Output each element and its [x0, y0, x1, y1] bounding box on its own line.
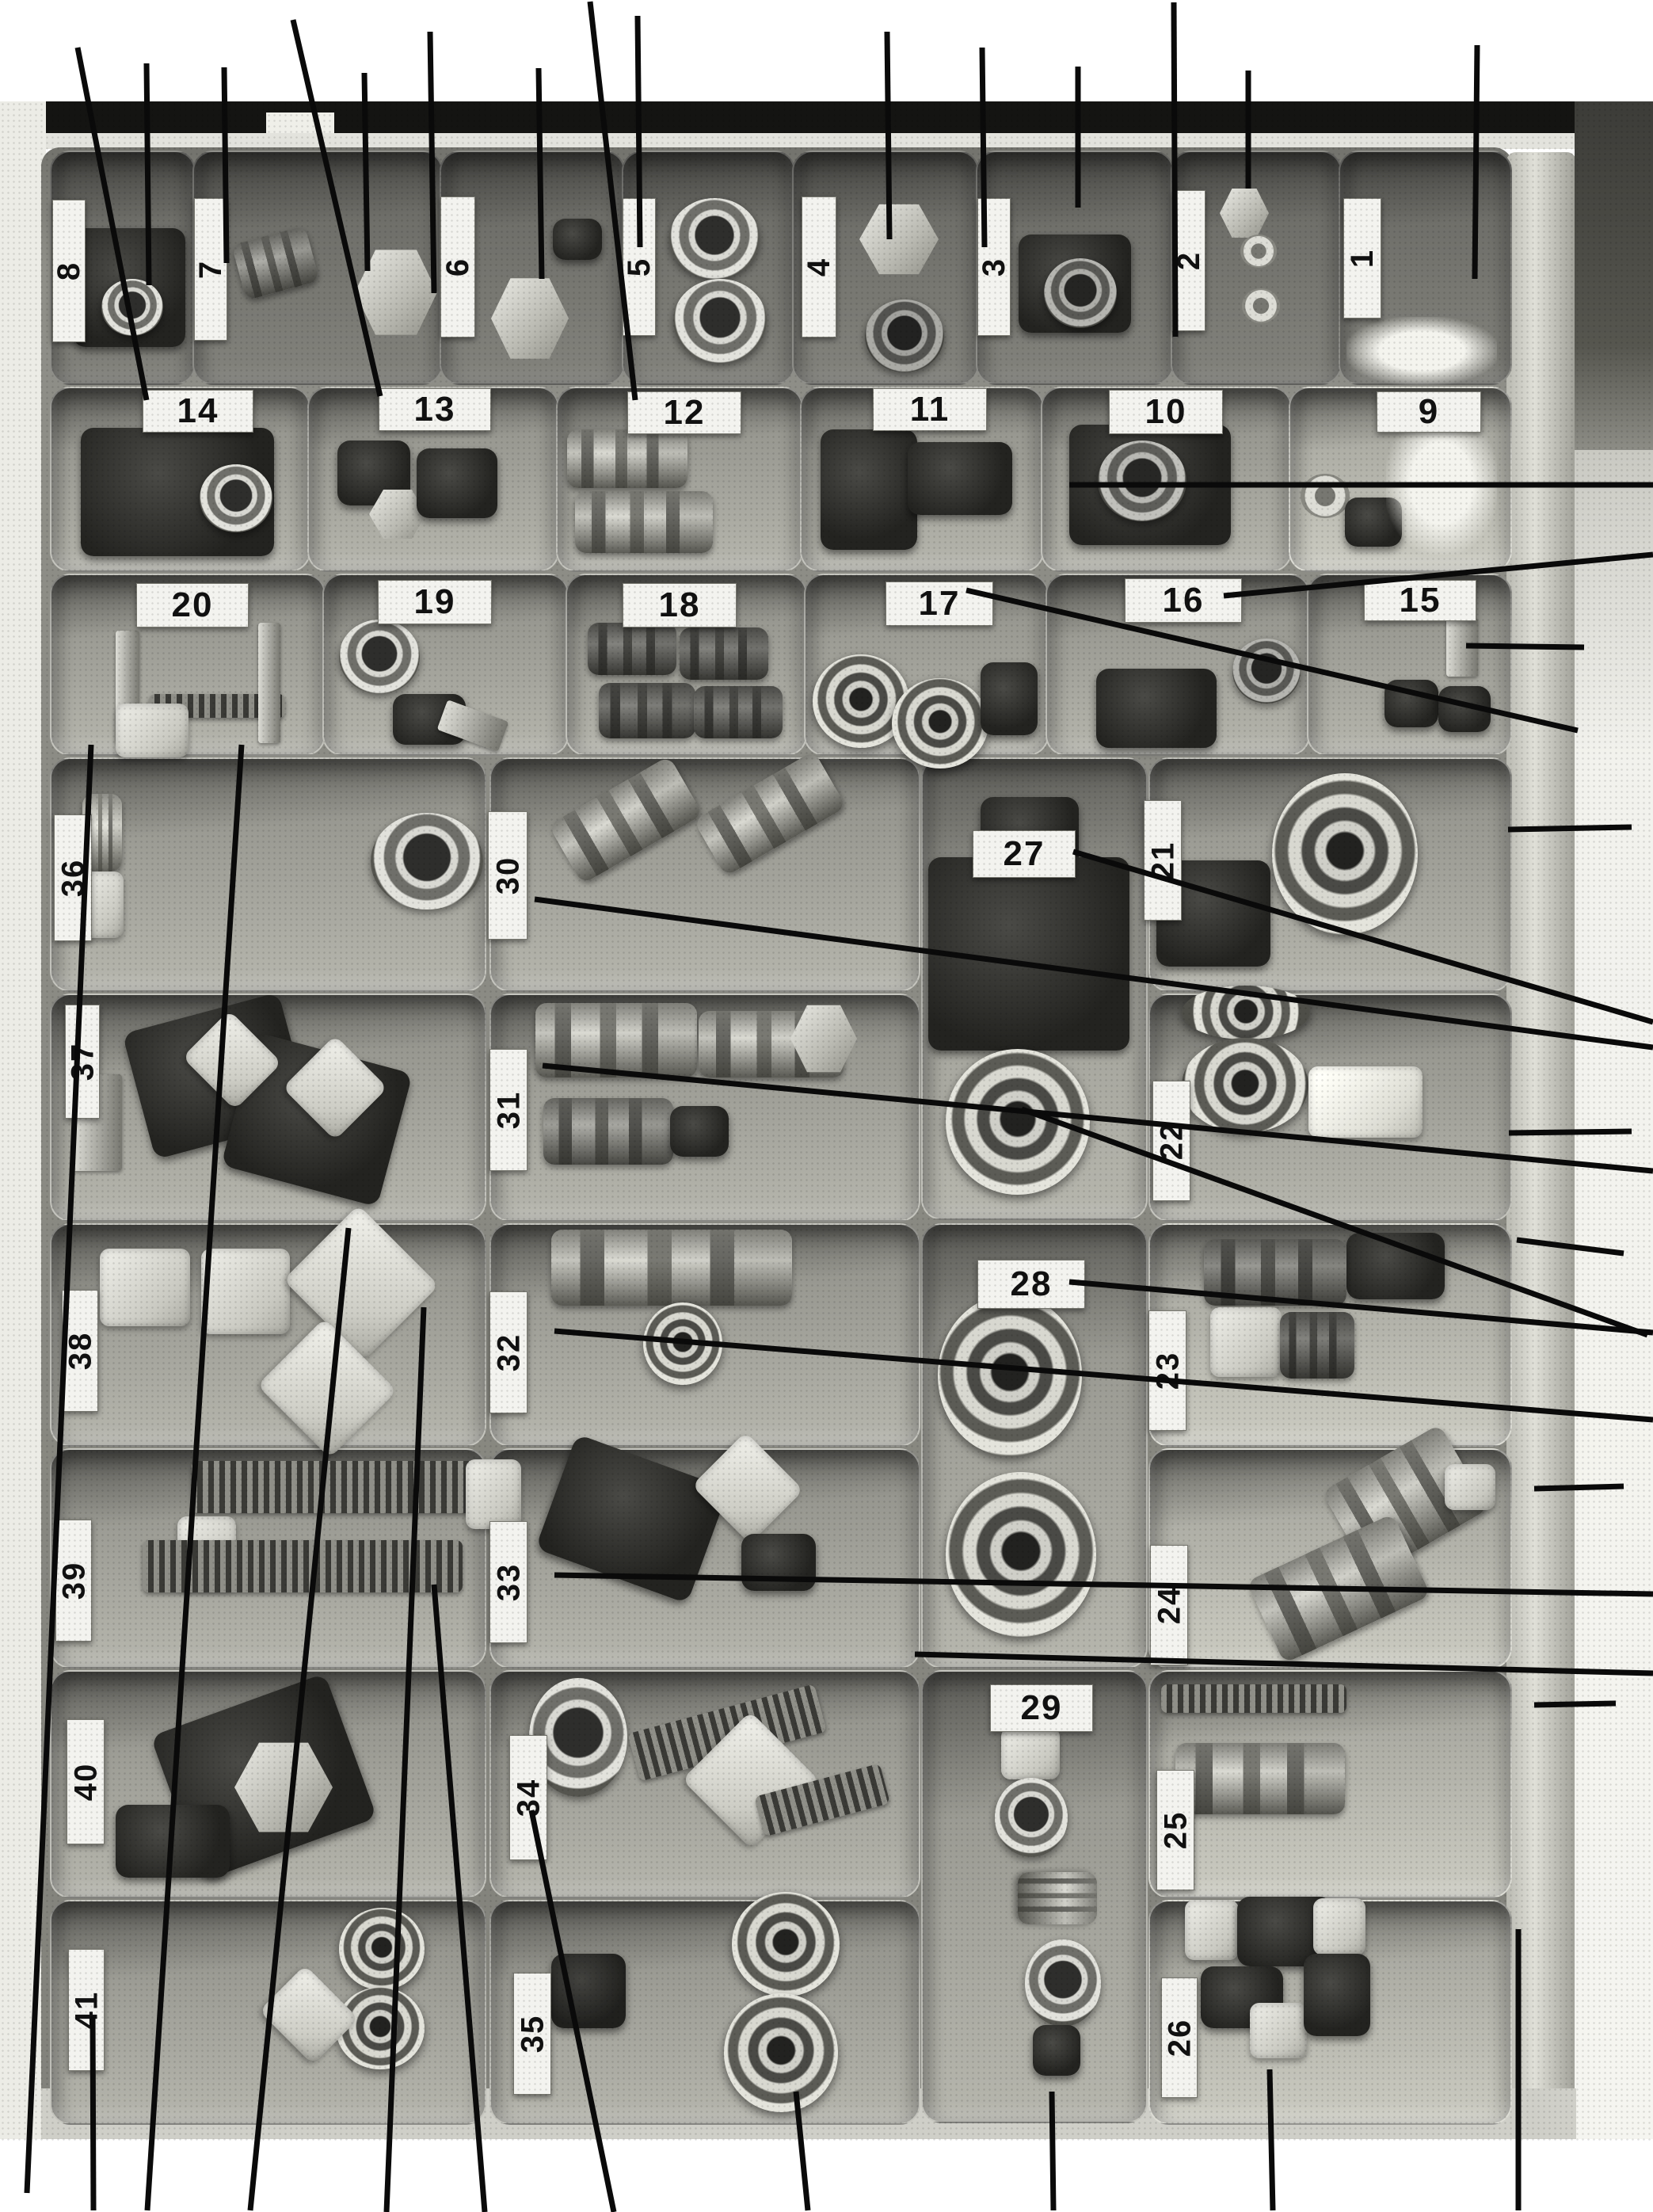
leader-line — [78, 48, 147, 400]
leader-line — [1466, 646, 1584, 647]
leader-line — [1052, 2092, 1053, 2210]
leader-line — [1508, 827, 1632, 829]
leader-line — [590, 2, 635, 400]
leader-line — [531, 1810, 614, 2212]
leader-line — [966, 590, 1578, 730]
leader-line — [147, 63, 149, 285]
patent-figure-page: 8765432114131211109201918171615363027213… — [0, 0, 1653, 2212]
leader-line — [1174, 2, 1175, 337]
leader-line — [1517, 1240, 1624, 1253]
leader-line — [554, 1331, 1653, 1420]
leader-line — [387, 1307, 424, 2212]
leader-line — [1224, 555, 1653, 596]
leader-line — [638, 16, 640, 247]
leader-line — [1475, 45, 1477, 279]
leader-line — [434, 1585, 485, 2212]
leader-line — [1270, 2069, 1273, 2210]
leader-line — [1509, 1131, 1632, 1133]
leader-line — [543, 1066, 1653, 1171]
leader-line — [554, 1575, 1653, 1594]
leader-line — [796, 2092, 808, 2210]
leader-line — [364, 73, 368, 271]
parts-tray-photo: 8765432114131211109201918171615363027213… — [0, 0, 1653, 2212]
leader-line — [1534, 1703, 1616, 1705]
leader-line — [1534, 1486, 1624, 1489]
leader-line — [539, 68, 542, 279]
callout-lines — [0, 0, 1653, 2212]
leader-line — [982, 48, 985, 247]
leader-line — [224, 67, 227, 263]
leader-line — [93, 2016, 93, 2210]
leader-line — [430, 32, 434, 293]
leader-line — [1073, 852, 1653, 1022]
leader-line — [887, 32, 889, 239]
leader-line — [250, 1228, 349, 2210]
leader-line — [27, 745, 91, 2193]
leader-line — [147, 745, 242, 2210]
leader-line — [915, 1654, 1653, 1673]
